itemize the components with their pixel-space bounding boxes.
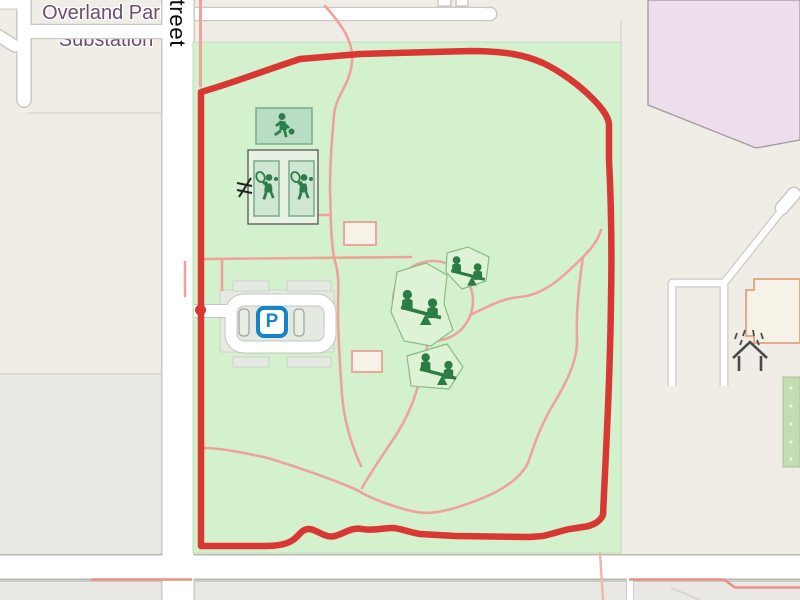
parking-icon[interactable]: P [256, 306, 288, 338]
map-canvas[interactable]: Street Overland Park Substation P [0, 0, 800, 600]
map-layers [0, 0, 800, 600]
scrub-patch [783, 377, 800, 467]
substation-area [648, 0, 800, 148]
tennis-courts [248, 150, 318, 224]
street-name-label: Street [164, 0, 190, 47]
